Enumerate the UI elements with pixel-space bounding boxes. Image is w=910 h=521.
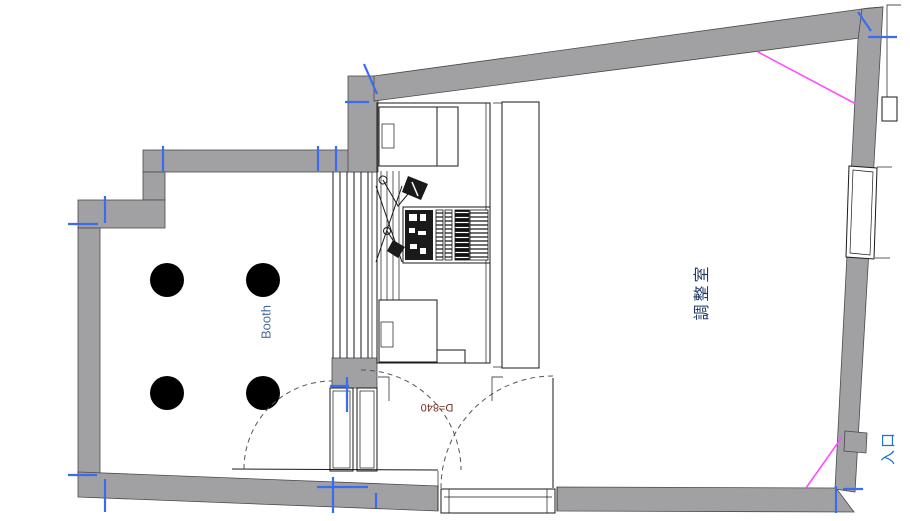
exterior-lines: [882, 5, 901, 121]
booth-label: Booth: [258, 305, 273, 339]
console-counter: [493, 102, 539, 368]
booth-speaker-dot: [150, 263, 184, 297]
bottom-wall-left: [78, 472, 438, 511]
floor-plan-drawing: Booth 調整室 入口 D=840: [0, 0, 910, 521]
booth-speaker-dot: [150, 376, 184, 410]
partition-door-frame: [330, 388, 353, 471]
control-room-label: 調整室: [693, 263, 711, 320]
top-slanted-wall: [374, 7, 883, 101]
top-corner-wall: [348, 76, 378, 172]
dimension-marks: [378, 377, 503, 401]
booth-top-wall: [143, 150, 377, 172]
door-swings: [232, 370, 553, 488]
equipment-rack: [403, 207, 490, 263]
equipment-desk-top: [379, 107, 458, 166]
left-wall: [78, 228, 100, 474]
entrance-pilaster: [844, 431, 867, 453]
door-dimension-label: D=840: [421, 401, 454, 413]
floor-plan: Booth 調整室 入口 D=840: [0, 0, 910, 521]
glazed-partition: [333, 172, 372, 358]
equipment-bay: [376, 103, 490, 363]
exterior-niche: [882, 97, 897, 121]
entrance-door: [438, 471, 557, 513]
partition-center-post: [332, 358, 377, 388]
entrance-label: 入口: [880, 431, 897, 465]
bottom-wall-right: [557, 487, 854, 512]
right-wall-window: [846, 166, 892, 259]
booth-step-wall: [143, 172, 165, 200]
partition-doors: [330, 388, 377, 471]
entrance-door-arc: [441, 376, 553, 488]
booth-speaker-dot: [246, 263, 280, 297]
equipment-desk-bottom: [379, 300, 437, 362]
booth-speaker-dot: [246, 376, 280, 410]
